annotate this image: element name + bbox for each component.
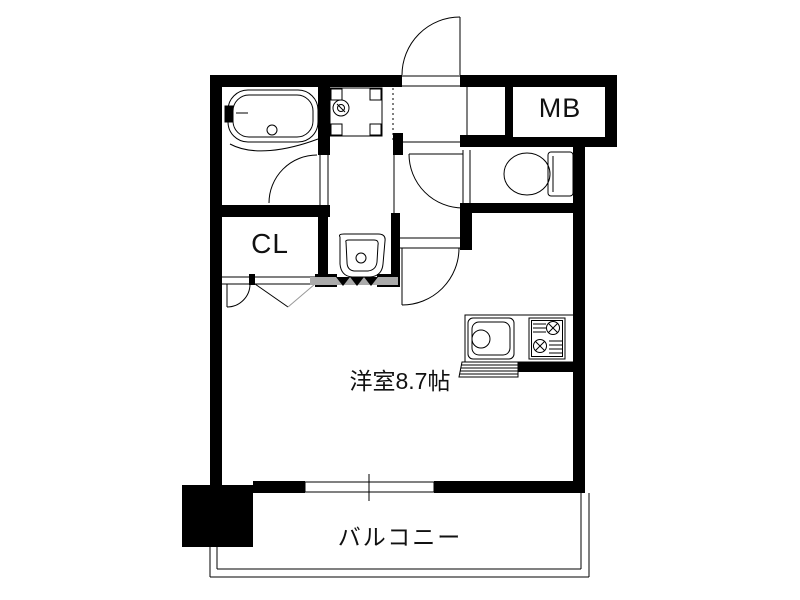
wall-top-left — [210, 75, 402, 87]
closet-small-door-arc — [227, 284, 250, 307]
basin-drain — [356, 253, 366, 263]
meter-box-label: MB — [513, 93, 607, 124]
main-room-door — [402, 248, 459, 305]
toilet-door — [409, 154, 463, 208]
wall-kitchen-stub — [518, 362, 573, 372]
closet-opening-mullion — [249, 274, 255, 285]
kitchen-sink — [468, 318, 514, 359]
wall-mb-bottom — [505, 137, 617, 147]
wall-left — [210, 75, 222, 489]
corner-pillar — [182, 485, 253, 547]
bathtub-drain — [267, 125, 277, 135]
sink-drain — [472, 330, 490, 348]
toilet-bowl — [504, 153, 550, 195]
floor-plan-drawing — [0, 0, 800, 600]
wall-bottom-left — [253, 481, 305, 493]
closet-label: CL — [222, 228, 318, 260]
folding-door-left — [255, 284, 288, 307]
wall-toilet-left-pillar — [460, 213, 472, 250]
gas-stove — [529, 318, 565, 359]
wall-bathroom-right — [318, 87, 330, 155]
washing-machine-pan — [330, 88, 382, 136]
toilet-door-arc — [409, 154, 463, 208]
accordion-zigzag — [336, 277, 378, 286]
wash-basin — [340, 234, 386, 277]
closet-folding-door — [255, 284, 315, 307]
washer-pan-tab-tl — [331, 89, 342, 100]
wall-hall-stub — [393, 133, 403, 155]
closet-small-door — [227, 284, 250, 307]
washer-pan-outline — [330, 88, 382, 136]
folding-door-right — [288, 284, 315, 307]
wall-closet-right — [318, 217, 328, 277]
accordion-door — [310, 277, 398, 286]
toilet-tank — [548, 152, 573, 196]
wall-mb-left — [505, 87, 513, 137]
bathroom-door-arc — [269, 155, 317, 203]
floor-plan: MB CL 洋室8.7帖 バルコニー — [0, 0, 800, 600]
main-room-door-arc — [402, 248, 459, 305]
washer-pan-tab-tr — [370, 89, 381, 100]
entrance-door — [402, 17, 460, 75]
basin-inner — [346, 240, 378, 271]
toilet — [504, 152, 573, 196]
main-room-label: 洋室8.7帖 — [300, 362, 500, 396]
washer-pan-tab-br — [370, 124, 381, 135]
bathroom-door — [269, 155, 317, 203]
wall-bottom-right — [434, 481, 585, 493]
sink-outer — [468, 318, 514, 359]
balcony-window — [305, 474, 434, 501]
sink-inner — [472, 322, 510, 355]
wall-closet-top — [210, 205, 330, 217]
bathtub-outer — [228, 90, 318, 142]
bathtub — [225, 90, 318, 151]
doors — [227, 17, 463, 307]
bathtub-inner — [233, 95, 313, 137]
entrance-door-arc — [402, 17, 460, 75]
bathtub-faucet — [225, 106, 233, 122]
wall-toilet-bottom — [460, 203, 583, 213]
wall-top-right — [460, 75, 617, 87]
balcony-label: バルコニー — [300, 518, 500, 552]
washer-pan-tab-bl — [331, 124, 342, 135]
walls — [182, 75, 617, 547]
wall-hall-left — [391, 213, 400, 278]
